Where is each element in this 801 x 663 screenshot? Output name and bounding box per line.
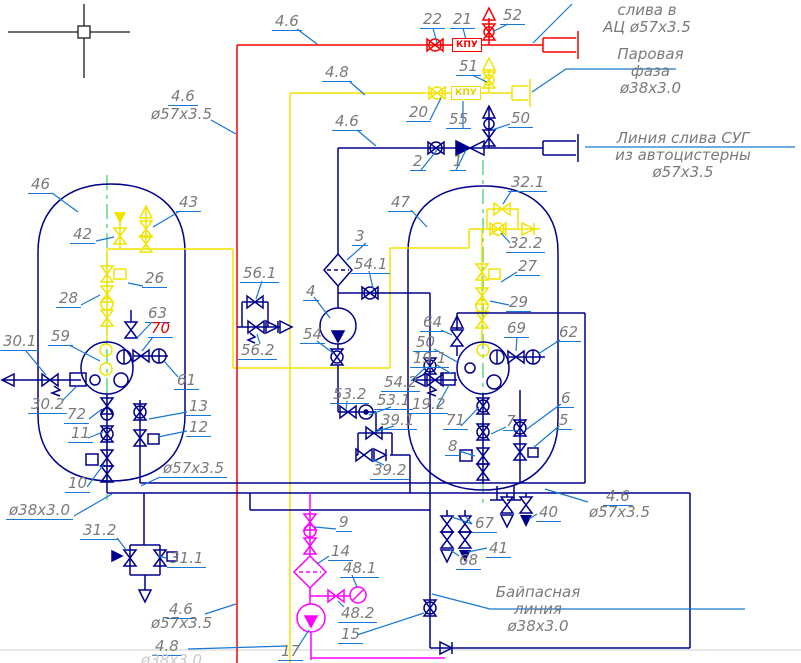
ref-label-29: 29: [506, 294, 531, 312]
ref-label-15: 15: [338, 626, 363, 644]
cad-pid-drawing: 22215251205550214.64.84.64.6ø57x3.546434…: [0, 0, 801, 663]
ref-label-3: 3: [352, 228, 368, 246]
ref-label-38x3.0: ø38x3.0: [138, 652, 205, 663]
ref-label-39.1: 39.1: [378, 412, 417, 430]
note-bypass-line: Байпаснаялинияø38x3.0: [482, 584, 594, 635]
ref-label-71: 71: [443, 412, 468, 430]
leader-lines: [26, 4, 795, 650]
ref-label-12: 12: [186, 419, 211, 437]
ref-label-2: 2: [410, 153, 426, 171]
ref-label-40: 40: [536, 504, 561, 522]
ref-label-59: 59: [48, 328, 73, 346]
ref-label-41: 41: [486, 540, 511, 558]
ref-label-4: 4: [303, 283, 319, 301]
ref-label-8: 8: [445, 438, 461, 456]
ref-label-48.1: 48.1: [340, 560, 379, 578]
ref-label-38x3.0: ø38x3.0: [6, 502, 73, 520]
ref-label-42: 42: [70, 226, 95, 244]
ref-label-56.1: 56.1: [240, 265, 279, 283]
ref-label-39.2: 39.2: [370, 462, 409, 480]
ref-label-20: 20: [406, 104, 431, 122]
ref-label-46: 46: [28, 176, 53, 194]
ref-label-57x3.5: ø57x3.5: [148, 106, 215, 123]
ref-label-13: 13: [186, 398, 211, 416]
ref-label-4.6: 4.6: [168, 88, 198, 106]
ref-label-64: 64: [420, 314, 445, 332]
ref-label-32.1: 32.1: [508, 174, 547, 192]
note-drain-to-truck-line: слива в: [592, 2, 702, 19]
ref-label-6: 6: [558, 390, 574, 408]
note-drain-to-truck: слива вАЦ ø57x3.5: [592, 2, 702, 36]
ref-label-30.1: 30.1: [0, 333, 39, 351]
ref-label-50: 50: [508, 110, 533, 128]
ref-label-62: 62: [556, 324, 581, 342]
ref-label-57x3.5: ø57x3.5: [148, 615, 215, 632]
note-lpg-unload-line-line: Линия слива СУГ: [572, 130, 794, 147]
ref-label-21: 21: [450, 11, 475, 29]
ref-label-53.2: 53.2: [330, 386, 369, 404]
ref-label-54.1: 54.1: [351, 256, 390, 274]
note-vapor-phase-line: фаза: [598, 63, 703, 80]
note-bypass-line-line: Байпасная: [482, 584, 594, 601]
ref-label-43: 43: [176, 194, 201, 212]
ref-label-52: 52: [500, 7, 525, 25]
ref-label-: КПУ: [452, 38, 482, 52]
ref-label-1: 1: [450, 153, 466, 171]
ref-label-70: 70: [148, 320, 173, 338]
note-vapor-phase-line: ø38x3.0: [598, 80, 703, 97]
ref-label-54: 54: [300, 326, 325, 344]
ref-label-4.6: 4.6: [272, 13, 302, 31]
note-vapor-phase: Пароваяфазаø38x3.0: [598, 46, 703, 97]
note-bypass-line-line: ø38x3.0: [482, 618, 594, 635]
note-lpg-unload-line: Линия слива СУГиз автоцистерныø57x3.5: [572, 130, 794, 181]
ref-label-57x3.5: ø57x3.5: [160, 460, 227, 478]
ref-label-31.2: 31.2: [80, 522, 119, 540]
piping-linework: [0, 0, 801, 663]
note-drain-to-truck-line: АЦ ø57x3.5: [592, 19, 702, 36]
ref-label-28: 28: [56, 290, 81, 308]
ref-label-30.2: 30.2: [28, 396, 67, 414]
ref-label-31.1: 31.1: [167, 550, 206, 568]
note-bypass-line-line: линия: [482, 601, 594, 618]
ref-label-22: 22: [420, 11, 445, 29]
ref-label-10: 10: [65, 475, 90, 493]
ref-label-17: 17: [278, 643, 303, 661]
ref-label-5: 5: [556, 412, 572, 430]
ref-label-27: 27: [515, 258, 540, 276]
ref-label-67: 67: [472, 515, 497, 533]
ref-label-9: 9: [336, 514, 352, 532]
ref-label-57x3.5: ø57x3.5: [586, 504, 653, 521]
ref-label-32.2: 32.2: [506, 235, 545, 253]
ref-label-51: 51: [456, 58, 481, 76]
ref-label-11: 11: [68, 425, 93, 443]
ref-label-: КПУ: [451, 86, 481, 100]
ref-label-55: 55: [446, 111, 471, 129]
ref-label-19.1: 19.1: [410, 350, 449, 368]
ref-label-56.2: 56.2: [238, 342, 277, 360]
ref-label-72: 72: [64, 406, 89, 424]
ref-label-47: 47: [388, 194, 413, 212]
ref-label-7: 7: [503, 413, 519, 431]
ref-label-4.8: 4.8: [322, 64, 352, 82]
ref-label-53.1: 53.1: [374, 392, 413, 410]
ref-label-26: 26: [142, 270, 167, 288]
ref-label-54.2: 54.2: [381, 374, 420, 392]
note-lpg-unload-line-line: ø57x3.5: [572, 164, 794, 181]
ref-label-61: 61: [174, 372, 199, 390]
note-vapor-phase-line: Паровая: [598, 46, 703, 63]
ref-label-68: 68: [456, 552, 481, 570]
ref-label-4.6: 4.6: [332, 113, 362, 131]
ref-label-48.2: 48.2: [338, 605, 377, 623]
note-lpg-unload-line-line: из автоцистерны: [572, 147, 794, 164]
crosshair-icon: [8, 4, 130, 78]
ref-label-69: 69: [504, 320, 529, 338]
